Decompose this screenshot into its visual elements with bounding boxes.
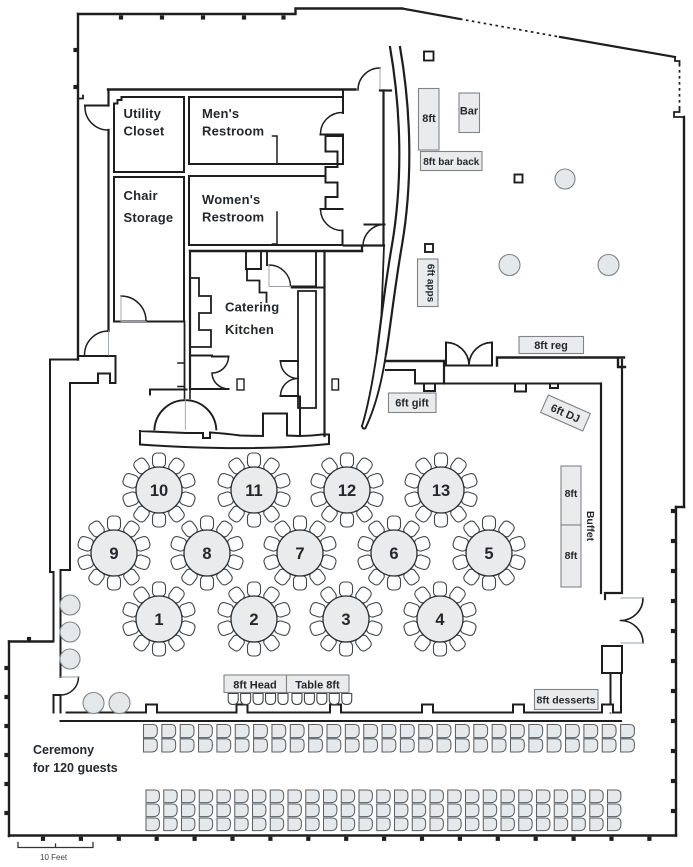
svg-text:8ft desserts: 8ft desserts <box>537 694 596 706</box>
svg-text:8: 8 <box>202 545 211 563</box>
svg-text:Men's: Men's <box>202 106 239 121</box>
svg-text:Chair: Chair <box>124 188 158 203</box>
svg-text:Storage: Storage <box>124 210 174 225</box>
svg-text:8ft: 8ft <box>565 488 578 500</box>
svg-text:Restroom: Restroom <box>202 124 264 139</box>
svg-text:Bar: Bar <box>460 106 479 118</box>
svg-text:7: 7 <box>295 545 304 563</box>
svg-text:8ft Head: 8ft Head <box>233 679 276 691</box>
svg-text:Women's: Women's <box>202 192 260 207</box>
svg-text:Closet: Closet <box>124 124 165 139</box>
svg-text:8ft reg: 8ft reg <box>534 340 568 352</box>
svg-text:13: 13 <box>432 482 450 500</box>
svg-text:Catering: Catering <box>225 300 279 315</box>
svg-text:11: 11 <box>245 482 262 500</box>
svg-text:Restroom: Restroom <box>202 210 264 225</box>
svg-text:6: 6 <box>389 545 398 563</box>
svg-text:Utility: Utility <box>124 106 162 121</box>
svg-text:6ft apps: 6ft apps <box>425 264 436 303</box>
svg-text:6ft gift: 6ft gift <box>395 398 429 410</box>
svg-text:Kitchen: Kitchen <box>225 322 274 337</box>
svg-text:8ft: 8ft <box>565 550 578 562</box>
svg-text:9: 9 <box>109 545 118 563</box>
svg-text:5: 5 <box>484 545 493 563</box>
svg-text:10 Feet: 10 Feet <box>40 853 68 862</box>
svg-text:8ft bar back: 8ft bar back <box>423 157 480 168</box>
svg-text:Table 8ft: Table 8ft <box>295 679 340 691</box>
svg-text:Buffet: Buffet <box>584 511 596 542</box>
svg-text:12: 12 <box>338 482 356 500</box>
svg-text:Ceremony: Ceremony <box>33 743 94 757</box>
svg-text:2: 2 <box>249 611 258 629</box>
svg-text:3: 3 <box>341 611 350 629</box>
svg-text:10: 10 <box>150 482 168 500</box>
svg-text:8ft: 8ft <box>422 113 436 125</box>
svg-text:4: 4 <box>435 611 445 629</box>
svg-text:1: 1 <box>154 611 163 629</box>
svg-text:for 120 guests: for 120 guests <box>33 761 118 775</box>
